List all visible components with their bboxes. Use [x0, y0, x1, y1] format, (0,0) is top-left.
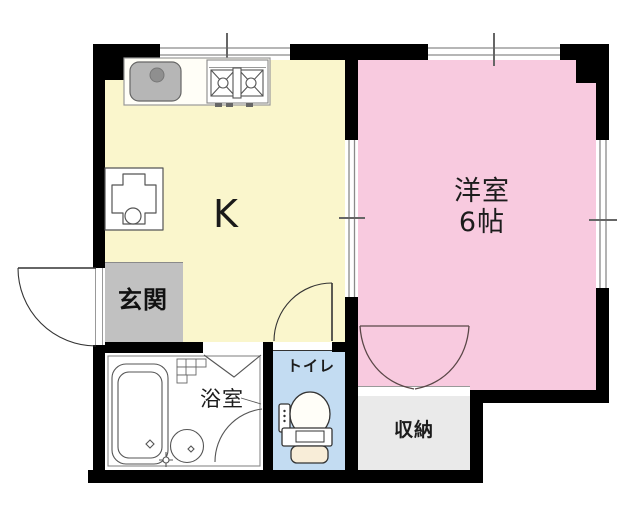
bathroom-floor	[105, 353, 263, 470]
entrance-door-icon	[18, 268, 96, 346]
storage-doorway-sill	[358, 386, 470, 396]
western-room-name: 洋室	[427, 176, 537, 207]
western-room-window-opening	[428, 44, 560, 60]
kitchen-label: K	[200, 193, 252, 237]
right-window-opening	[596, 140, 609, 288]
bathroom-top-wall	[93, 342, 203, 353]
kitchen-window-opening	[160, 44, 290, 60]
toilet-door-hinge-wall	[332, 342, 358, 352]
floor-plan: K 洋室 6帖 玄関 浴室 トイレ 収納	[0, 0, 640, 506]
left-wall	[93, 44, 105, 470]
western-room-label: 洋室 6帖	[427, 176, 537, 238]
storage-label: 収納	[366, 420, 462, 442]
divider-window-opening	[345, 140, 358, 297]
bathroom-label: 浴室	[180, 387, 264, 411]
entrance-label: 玄関	[103, 287, 183, 315]
bottom-wall	[88, 470, 483, 483]
toilet-label: トイレ	[275, 358, 347, 375]
western-room-bottom-wall	[470, 390, 609, 403]
western-room-size: 6帖	[427, 207, 537, 238]
toilet-left-wall	[263, 342, 273, 470]
